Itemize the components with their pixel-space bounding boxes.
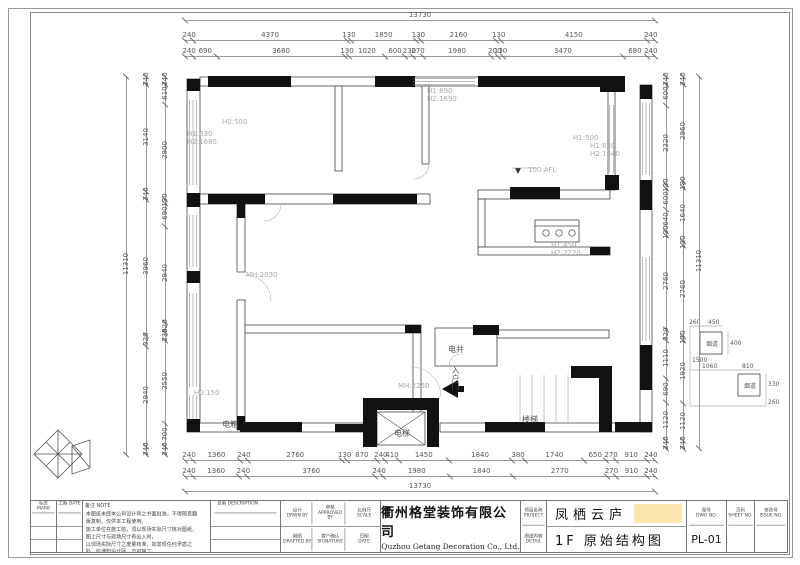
plan-annotation-h1450: H1:450 — [551, 241, 576, 249]
dimension-value: 3960 — [142, 246, 150, 286]
plan-annotation-mh2250: MH:2250 — [398, 382, 429, 390]
dimension-value: 130 — [398, 31, 438, 39]
dimension-value: 240 — [631, 31, 671, 39]
dimension-value: 1450 — [404, 451, 444, 459]
company-logo — [28, 424, 100, 496]
issue-no-cell: 修改号ISSUE NO. — [755, 501, 787, 552]
dimension-value: 240 — [224, 451, 264, 459]
dimension-value: 240 — [161, 429, 169, 469]
dimension-value: 240 — [142, 174, 150, 214]
dimension-value: 2900 — [161, 130, 169, 170]
plan-annotation-entry: 入户门 — [450, 366, 461, 390]
description-column: 说明 DESCRIPTION — [211, 501, 281, 552]
date-column: 工期 DATE — [57, 501, 83, 552]
flue-label: 烟道 — [706, 340, 718, 348]
dimension-value: 2760 — [662, 261, 670, 301]
names-column: 凤栖云庐 1F 原始结构图 — [547, 501, 687, 552]
dimension-line — [185, 20, 655, 21]
dimension-value: 270 — [398, 47, 438, 55]
drawing-number: PL-01 — [687, 527, 726, 552]
dimension-value: 1980 — [397, 467, 437, 475]
dimension-line — [185, 56, 655, 57]
plan-annotation-afl: 100 AFL — [528, 166, 556, 174]
flue-detail: 烟道 烟道 260 450 400 1060 810 1500 330 260 — [688, 318, 788, 410]
dimension-value: 2960 — [679, 111, 687, 151]
dimension-value: 2160 — [439, 31, 479, 39]
dimension-value: 4150 — [554, 31, 594, 39]
plan-annotation-h22220: H2:2220 — [551, 249, 581, 257]
dimension-value: 2940 — [161, 253, 169, 293]
dimension-line — [185, 491, 655, 492]
dimension-value: 1920 — [679, 351, 687, 391]
dimension-value: 3140 — [142, 117, 150, 157]
dimension-value: 240 — [169, 31, 209, 39]
company-cell: 衢州格堂装饰有限公司 Quzhou Getang Decoration Co.,… — [381, 501, 521, 552]
svg-text:400: 400 — [730, 340, 742, 347]
dimension-value: 2320 — [662, 123, 670, 163]
plan-annotation-shaft: 电井 — [448, 344, 464, 355]
plan-annotation-h0500: H0:500 — [222, 118, 247, 126]
dimension-value: 690 — [161, 193, 169, 233]
company-name-en: Quzhou Getang Decoration Co., Ltd. — [381, 542, 519, 551]
svg-text:1060: 1060 — [702, 363, 717, 370]
dimension-value: 13730 — [400, 11, 440, 19]
dimension-value: 130 — [481, 47, 521, 55]
drawing-sheet: { "dims": { "top_total": "13730", "top_r… — [0, 0, 800, 565]
title-block: 标志 MARK 工期 DATE 备注 NOTE 本图纸未经本公司设计师之书面批准… — [30, 500, 788, 553]
notes-text: 本图纸未经本公司设计师之书面批准，不得随意翻版复制，仅供本工程使用。施工单位在施… — [83, 510, 200, 552]
level-marker-icon — [515, 168, 521, 174]
dimension-value: 230 — [161, 315, 169, 355]
dimension-value: 2940 — [142, 375, 150, 415]
highlight-marker — [634, 504, 682, 523]
dimension-value: 13730 — [400, 482, 440, 490]
revision-column: 标志 MARK — [31, 501, 57, 552]
plan-annotation-h1620: H1:620 — [590, 142, 615, 150]
sheet-no-cell: 页码SHEET NO. — [727, 501, 755, 552]
dimension-value: 3470 — [543, 47, 583, 55]
dimension-value: 240 — [679, 423, 687, 463]
dimension-value: 4370 — [250, 31, 290, 39]
signoff-grid: 设计DRWN BY 审核APPROVED BY 比例尺SCALE 制图DRAFT… — [281, 501, 381, 552]
dimension-value: 240 — [662, 423, 670, 463]
plan-annotation-panel: 电箱 — [222, 419, 238, 430]
plan-annotation-h21640: H2:1640 — [590, 150, 620, 158]
dimension-value: 380 — [498, 451, 538, 459]
dimension-value: 1840 — [460, 451, 500, 459]
dimension-value: 130 — [479, 31, 519, 39]
plan-annotation-elevator: 电梯 — [394, 428, 410, 439]
dimension-value: 240 — [679, 59, 687, 99]
flue-label: 烟道 — [744, 382, 756, 390]
dimension-value: 320 — [142, 319, 150, 359]
plan-annotation-h0150: H0:150 — [194, 389, 219, 397]
dimension-value: 11310 — [122, 244, 130, 284]
dimension-value: 1980 — [437, 47, 477, 55]
dimension-value: 240 — [631, 47, 671, 55]
dimension-value: 130 — [679, 222, 687, 262]
dimension-value: 1740 — [534, 451, 574, 459]
plan-annotation-h21690: H2:1690 — [427, 95, 457, 103]
drawing-name: 1F 原始结构图 — [547, 527, 686, 552]
plan-annotation-h1690: H1:690 — [427, 87, 452, 95]
plan-annotation-h1500: H1:500 — [573, 134, 598, 142]
dimension-value: 600 — [662, 73, 670, 113]
dimension-value: 3680 — [261, 47, 301, 55]
svg-text:330: 330 — [768, 381, 780, 388]
svg-text:810: 810 — [742, 363, 754, 370]
dimension-value: 130 — [662, 212, 670, 252]
svg-text:260: 260 — [768, 399, 780, 406]
floor-plan — [185, 75, 655, 455]
dimension-value: 2760 — [679, 269, 687, 309]
kitchen-counter — [535, 220, 579, 242]
dwg-no-cell: 图号DWG NO. PL-01 — [687, 501, 727, 552]
dimension-value: 610 — [161, 73, 169, 113]
dimension-value: 1840 — [462, 467, 502, 475]
dimension-value: 240 — [223, 467, 263, 475]
dimension-value: 690 — [185, 47, 225, 55]
dimension-value: 2770 — [540, 467, 580, 475]
company-name-cn: 衢州格堂装饰有限公司 — [381, 502, 520, 540]
plan-annotation-h21680: H2:1680 — [187, 138, 217, 146]
plan-annotation-h1630: H1:630 — [187, 130, 212, 138]
dimension-value: 11310 — [695, 241, 703, 281]
dimension-value: 3760 — [291, 467, 331, 475]
plan-annotation-mh2030: MH:2030 — [246, 271, 277, 279]
dimension-line — [185, 476, 655, 477]
dimension-value: 240 — [142, 429, 150, 469]
name-labels-column: 项目名称PROJECT 图纸内容DETAIL — [521, 501, 547, 552]
plan-annotation-stairs: 楼梯 — [522, 414, 538, 425]
dimension-value: 240 — [142, 59, 150, 99]
dimension-value: 2760 — [275, 451, 315, 459]
dimension-value: 2550 — [161, 361, 169, 401]
dimension-value: 240 — [359, 467, 399, 475]
dimension-value: 240 — [631, 467, 671, 475]
svg-text:450: 450 — [708, 319, 720, 326]
notes-cell: 备注 NOTE 本图纸未经本公司设计师之书面批准，不得随意翻版复制，仅供本工程使… — [83, 501, 211, 552]
